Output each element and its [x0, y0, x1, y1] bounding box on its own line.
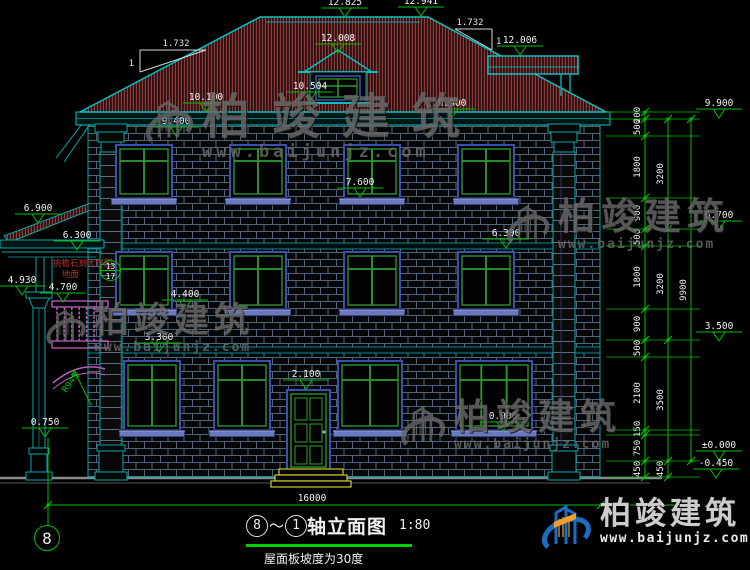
brand-logo: 柏竣建筑 www.baijunjz.com: [534, 497, 749, 561]
axis-end-bubble: 1: [285, 515, 307, 537]
drawing-title-text: 轴立面图: [307, 516, 387, 538]
svg-text:10.504: 10.504: [293, 81, 328, 92]
svg-text:450: 450: [633, 461, 643, 477]
axis-start-bubble: 8: [246, 515, 268, 537]
svg-text:12.825: 12.825: [328, 0, 362, 8]
elevation-marker: 12.941: [398, 0, 444, 16]
dimension-chain: 320032003500450: [656, 115, 672, 481]
elevation-marker: 9.900: [696, 98, 742, 118]
svg-text:3200: 3200: [656, 163, 666, 185]
svg-text:1.732: 1.732: [162, 39, 189, 49]
svg-text:7.600: 7.600: [346, 177, 375, 188]
svg-text:±0.000: ±0.000: [702, 440, 737, 451]
svg-text:10.100: 10.100: [189, 92, 224, 103]
svg-text:1.732: 1.732: [456, 18, 483, 28]
svg-text:900: 900: [633, 205, 643, 221]
svg-text:500: 500: [633, 229, 643, 245]
detail-ref-sheet: 13: [101, 261, 120, 271]
svg-text:6.700: 6.700: [705, 210, 734, 221]
svg-text:16000: 16000: [298, 493, 327, 504]
svg-text:4.400: 4.400: [171, 289, 200, 300]
eave-cornice: [76, 112, 610, 125]
entry-door: [287, 390, 330, 470]
svg-text:0.900: 0.900: [489, 411, 518, 422]
dimension-chain: 9900: [679, 115, 695, 465]
elevation-marker: 3.500: [696, 321, 742, 341]
svg-text:4.700: 4.700: [49, 282, 78, 293]
dimension-chain: 200500180090050018009005002100150750450: [633, 107, 649, 481]
brand-name: 柏竣建筑: [600, 497, 749, 531]
svg-text:1: 1: [129, 59, 134, 69]
svg-text:0.750: 0.750: [31, 417, 60, 428]
axis-range-separator: ～: [269, 517, 284, 535]
brand-url: www.baijunjz.com: [600, 531, 749, 546]
svg-text:3.500: 3.500: [705, 321, 734, 332]
svg-text:6.900: 6.900: [24, 203, 53, 214]
elevation-marker: 12.006: [497, 35, 543, 55]
brand-building-icon: [534, 497, 594, 557]
svg-text:500: 500: [633, 119, 643, 135]
svg-text:9.900: 9.900: [438, 98, 467, 109]
svg-text:-0.450: -0.450: [699, 458, 734, 469]
svg-text:6.300: 6.300: [63, 230, 92, 241]
svg-text:3500: 3500: [656, 389, 666, 411]
svg-text:9.400: 9.400: [162, 116, 191, 127]
elevation-marker: ±0.000: [696, 440, 742, 460]
cad-canvas: 12.82512.94112.00812.00610.50410.1009.90…: [0, 0, 750, 570]
svg-text:3.300: 3.300: [145, 332, 174, 343]
svg-text:12.006: 12.006: [503, 35, 538, 46]
svg-text:1800: 1800: [633, 156, 643, 178]
entry-steps: [271, 469, 351, 487]
elevation-marker: 6.700: [696, 210, 742, 230]
elevation-marker: 12.825: [322, 0, 368, 17]
elevation-drawing: 12.82512.94112.00812.00610.50410.1009.90…: [0, 0, 750, 570]
svg-text:2.100: 2.100: [292, 369, 321, 380]
svg-text:2100: 2100: [633, 382, 643, 404]
title-underline: [246, 544, 412, 547]
detail-ref-page: 17: [101, 271, 120, 281]
svg-text:4.930: 4.930: [8, 275, 37, 286]
svg-text:6.300: 6.300: [492, 228, 521, 239]
svg-text:500: 500: [633, 340, 643, 356]
svg-text:1: 1: [496, 37, 501, 47]
svg-text:1800: 1800: [633, 266, 643, 288]
svg-text:900: 900: [633, 316, 643, 332]
drawing-title: 8～1轴立面图1:80: [246, 512, 430, 539]
pilaster: [548, 124, 580, 480]
svg-text:450: 450: [656, 461, 666, 477]
svg-text:3200: 3200: [656, 273, 666, 295]
drawing-scale: 1:80: [399, 518, 430, 533]
svg-text:750: 750: [633, 440, 643, 456]
svg-text:12.941: 12.941: [404, 0, 439, 7]
svg-text:9900: 9900: [679, 279, 689, 301]
detail-ref-bubble: 13 17: [100, 260, 121, 281]
axis-bubble-8: 8: [34, 525, 60, 551]
brand-logo-icon: [534, 497, 594, 561]
svg-text:12.008: 12.008: [321, 33, 356, 44]
svg-text:9.900: 9.900: [705, 98, 734, 109]
roof-slope-note: 屋面板坡度为30度: [264, 550, 363, 567]
